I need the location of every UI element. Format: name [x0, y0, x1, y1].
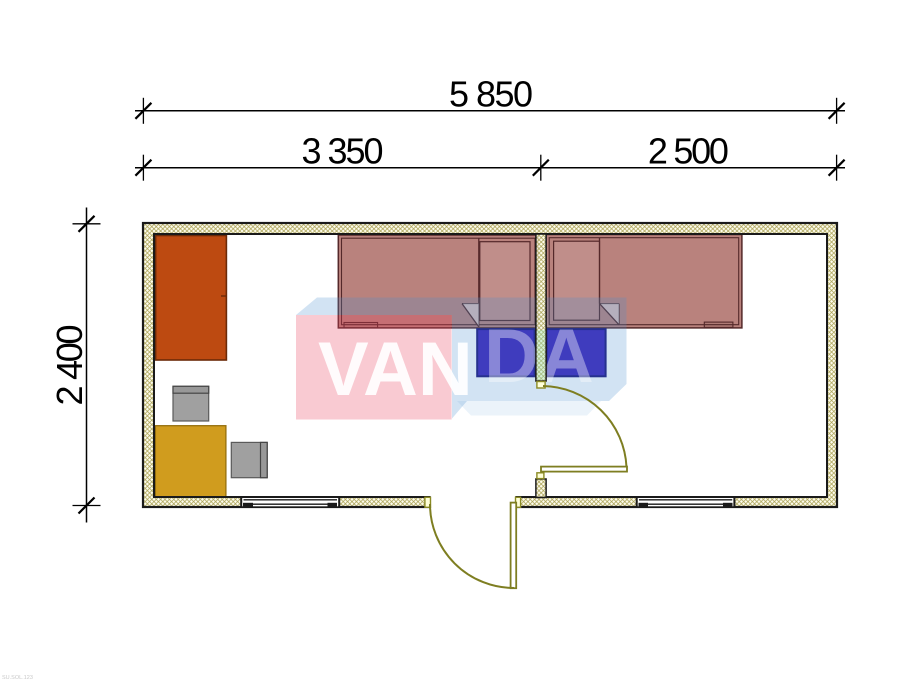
svg-text:2 400: 2 400 [49, 325, 90, 406]
svg-text:2 500: 2 500 [648, 131, 729, 172]
svg-text:3 350: 3 350 [302, 131, 384, 172]
svg-text:VAN: VAN [318, 327, 473, 412]
svg-text:SU.SOL.123: SU.SOL.123 [2, 675, 33, 681]
svg-text:5 850: 5 850 [449, 74, 533, 115]
